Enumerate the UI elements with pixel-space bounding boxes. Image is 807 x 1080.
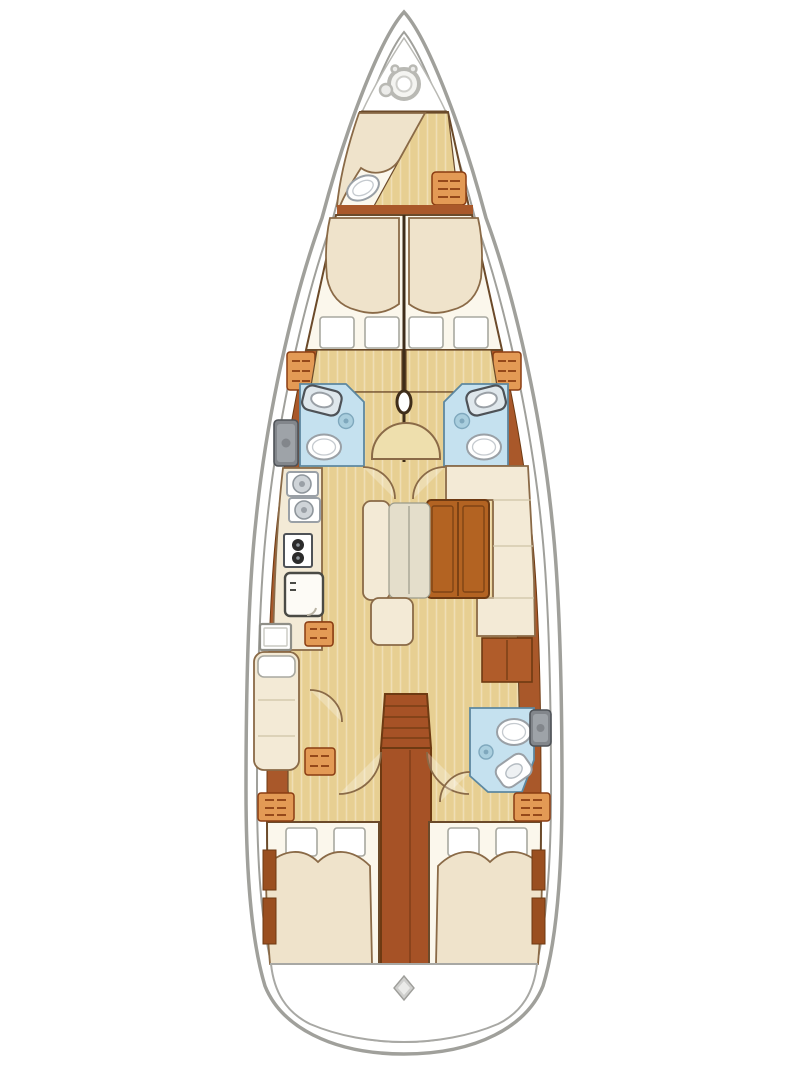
galley-sink-2-drain — [301, 507, 307, 513]
aft-head-drain-hole — [484, 750, 489, 755]
pillow — [409, 317, 443, 348]
windlass-drum — [397, 77, 412, 92]
desk-berth-pillow — [258, 656, 295, 677]
crew-aft-bulkhead — [337, 205, 473, 215]
companionway-steps — [381, 694, 431, 748]
head-port — [300, 384, 364, 466]
port-hull-sink-unit — [274, 420, 298, 466]
windlass-knob — [410, 66, 417, 73]
port-sink-drain — [282, 439, 291, 448]
pillow — [365, 317, 399, 348]
burner-center — [296, 556, 300, 560]
aft-cabinet-port — [258, 793, 294, 821]
port-bench-cushion — [363, 501, 390, 600]
pillow — [320, 317, 354, 348]
crew-cabinet — [432, 172, 466, 205]
burner-center — [296, 543, 300, 547]
head-port-drain-hole — [344, 419, 349, 424]
aft-locker-port — [263, 898, 276, 944]
mast — [397, 391, 411, 413]
port-stool — [371, 598, 413, 645]
head-starboard — [444, 384, 508, 466]
forward-berth-starboard — [409, 218, 482, 313]
aft-cabinet-starboard — [514, 793, 550, 821]
head-starboard-drain-hole — [460, 419, 465, 424]
galley-sink-1-drain — [299, 481, 305, 487]
aft-berth-starboard — [436, 852, 542, 964]
aft-locker-starboard — [532, 898, 545, 944]
pillow — [454, 317, 488, 348]
engine-box — [381, 748, 431, 966]
page — [0, 0, 807, 1080]
forward-berth-port — [326, 218, 399, 313]
chain-wheel — [380, 84, 392, 96]
desk-cabinet-aft — [305, 748, 335, 775]
boat-floor-plan — [0, 0, 807, 1080]
aft-locker-starboard — [532, 850, 545, 890]
galley-fridge — [285, 573, 323, 616]
starboard-sink-drain — [537, 724, 545, 732]
desk-cabinet-forward — [305, 622, 333, 646]
starboard-hull-sink-unit — [530, 710, 551, 746]
salon-table — [427, 500, 489, 598]
aft-berth-port — [266, 852, 372, 964]
aft-locker-port — [263, 850, 276, 890]
yacht-floor-plan-svg — [0, 0, 807, 1080]
windlass-knob — [392, 66, 399, 73]
